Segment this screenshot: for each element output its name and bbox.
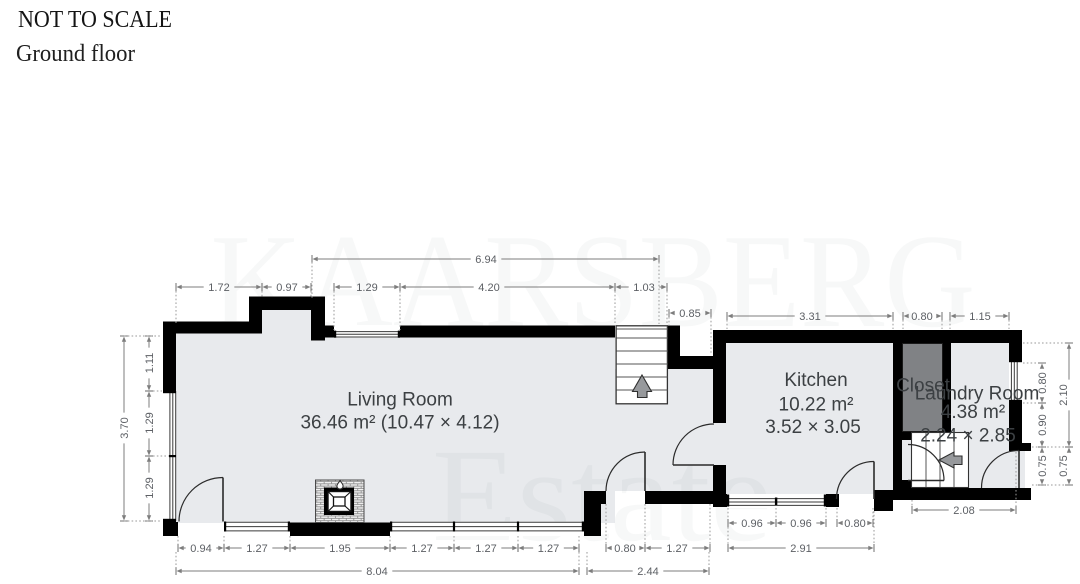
svg-text:8.04: 8.04 bbox=[366, 566, 387, 578]
svg-text:4.20: 4.20 bbox=[478, 282, 499, 294]
svg-text:2.08: 2.08 bbox=[953, 505, 974, 517]
svg-text:0.96: 0.96 bbox=[790, 518, 811, 530]
svg-text:1.27: 1.27 bbox=[475, 543, 496, 555]
svg-text:Kitchen: Kitchen bbox=[784, 370, 847, 391]
svg-text:NOT TO SCALE: NOT TO SCALE bbox=[18, 7, 172, 33]
svg-text:6.94: 6.94 bbox=[475, 254, 496, 266]
svg-text:3.70: 3.70 bbox=[119, 417, 131, 438]
svg-text:4.38 m²: 4.38 m² bbox=[941, 402, 1005, 423]
svg-text:1.29: 1.29 bbox=[356, 282, 377, 294]
svg-text:0.80: 0.80 bbox=[844, 518, 865, 530]
svg-text:Ground floor: Ground floor bbox=[16, 41, 135, 67]
svg-text:36.46 m² (10.47 × 4.12): 36.46 m² (10.47 × 4.12) bbox=[300, 413, 499, 434]
svg-text:1.29: 1.29 bbox=[144, 477, 156, 498]
svg-text:1.27: 1.27 bbox=[666, 543, 687, 555]
svg-text:2.10: 2.10 bbox=[1058, 384, 1070, 405]
svg-text:0.94: 0.94 bbox=[190, 543, 211, 555]
svg-text:1.15: 1.15 bbox=[969, 311, 990, 323]
svg-text:0.80: 0.80 bbox=[614, 543, 635, 555]
svg-text:2.91: 2.91 bbox=[790, 543, 811, 555]
svg-text:10.22 m²: 10.22 m² bbox=[779, 395, 854, 416]
svg-text:1.03: 1.03 bbox=[633, 282, 654, 294]
svg-text:0.80: 0.80 bbox=[911, 311, 932, 323]
svg-text:0.85: 0.85 bbox=[679, 308, 700, 320]
svg-text:1.95: 1.95 bbox=[329, 543, 350, 555]
svg-text:1.11: 1.11 bbox=[144, 353, 156, 374]
svg-text:1.29: 1.29 bbox=[144, 412, 156, 433]
svg-text:3.31: 3.31 bbox=[799, 311, 820, 323]
svg-text:3.52 × 3.05: 3.52 × 3.05 bbox=[765, 417, 861, 438]
svg-text:0.80: 0.80 bbox=[1037, 372, 1049, 393]
svg-text:1.72: 1.72 bbox=[208, 282, 229, 294]
svg-text:0.75: 0.75 bbox=[1058, 455, 1070, 476]
svg-text:2.24 × 2.85: 2.24 × 2.85 bbox=[920, 426, 1016, 447]
svg-text:1.27: 1.27 bbox=[538, 543, 559, 555]
svg-text:0.75: 0.75 bbox=[1037, 455, 1049, 476]
svg-text:0.90: 0.90 bbox=[1037, 414, 1049, 435]
svg-text:0.97: 0.97 bbox=[276, 282, 297, 294]
svg-text:Living Room: Living Room bbox=[347, 390, 453, 411]
svg-text:2.44: 2.44 bbox=[637, 566, 658, 578]
svg-text:1.27: 1.27 bbox=[411, 543, 432, 555]
svg-text:1.27: 1.27 bbox=[246, 543, 267, 555]
svg-text:0.96: 0.96 bbox=[741, 518, 762, 530]
